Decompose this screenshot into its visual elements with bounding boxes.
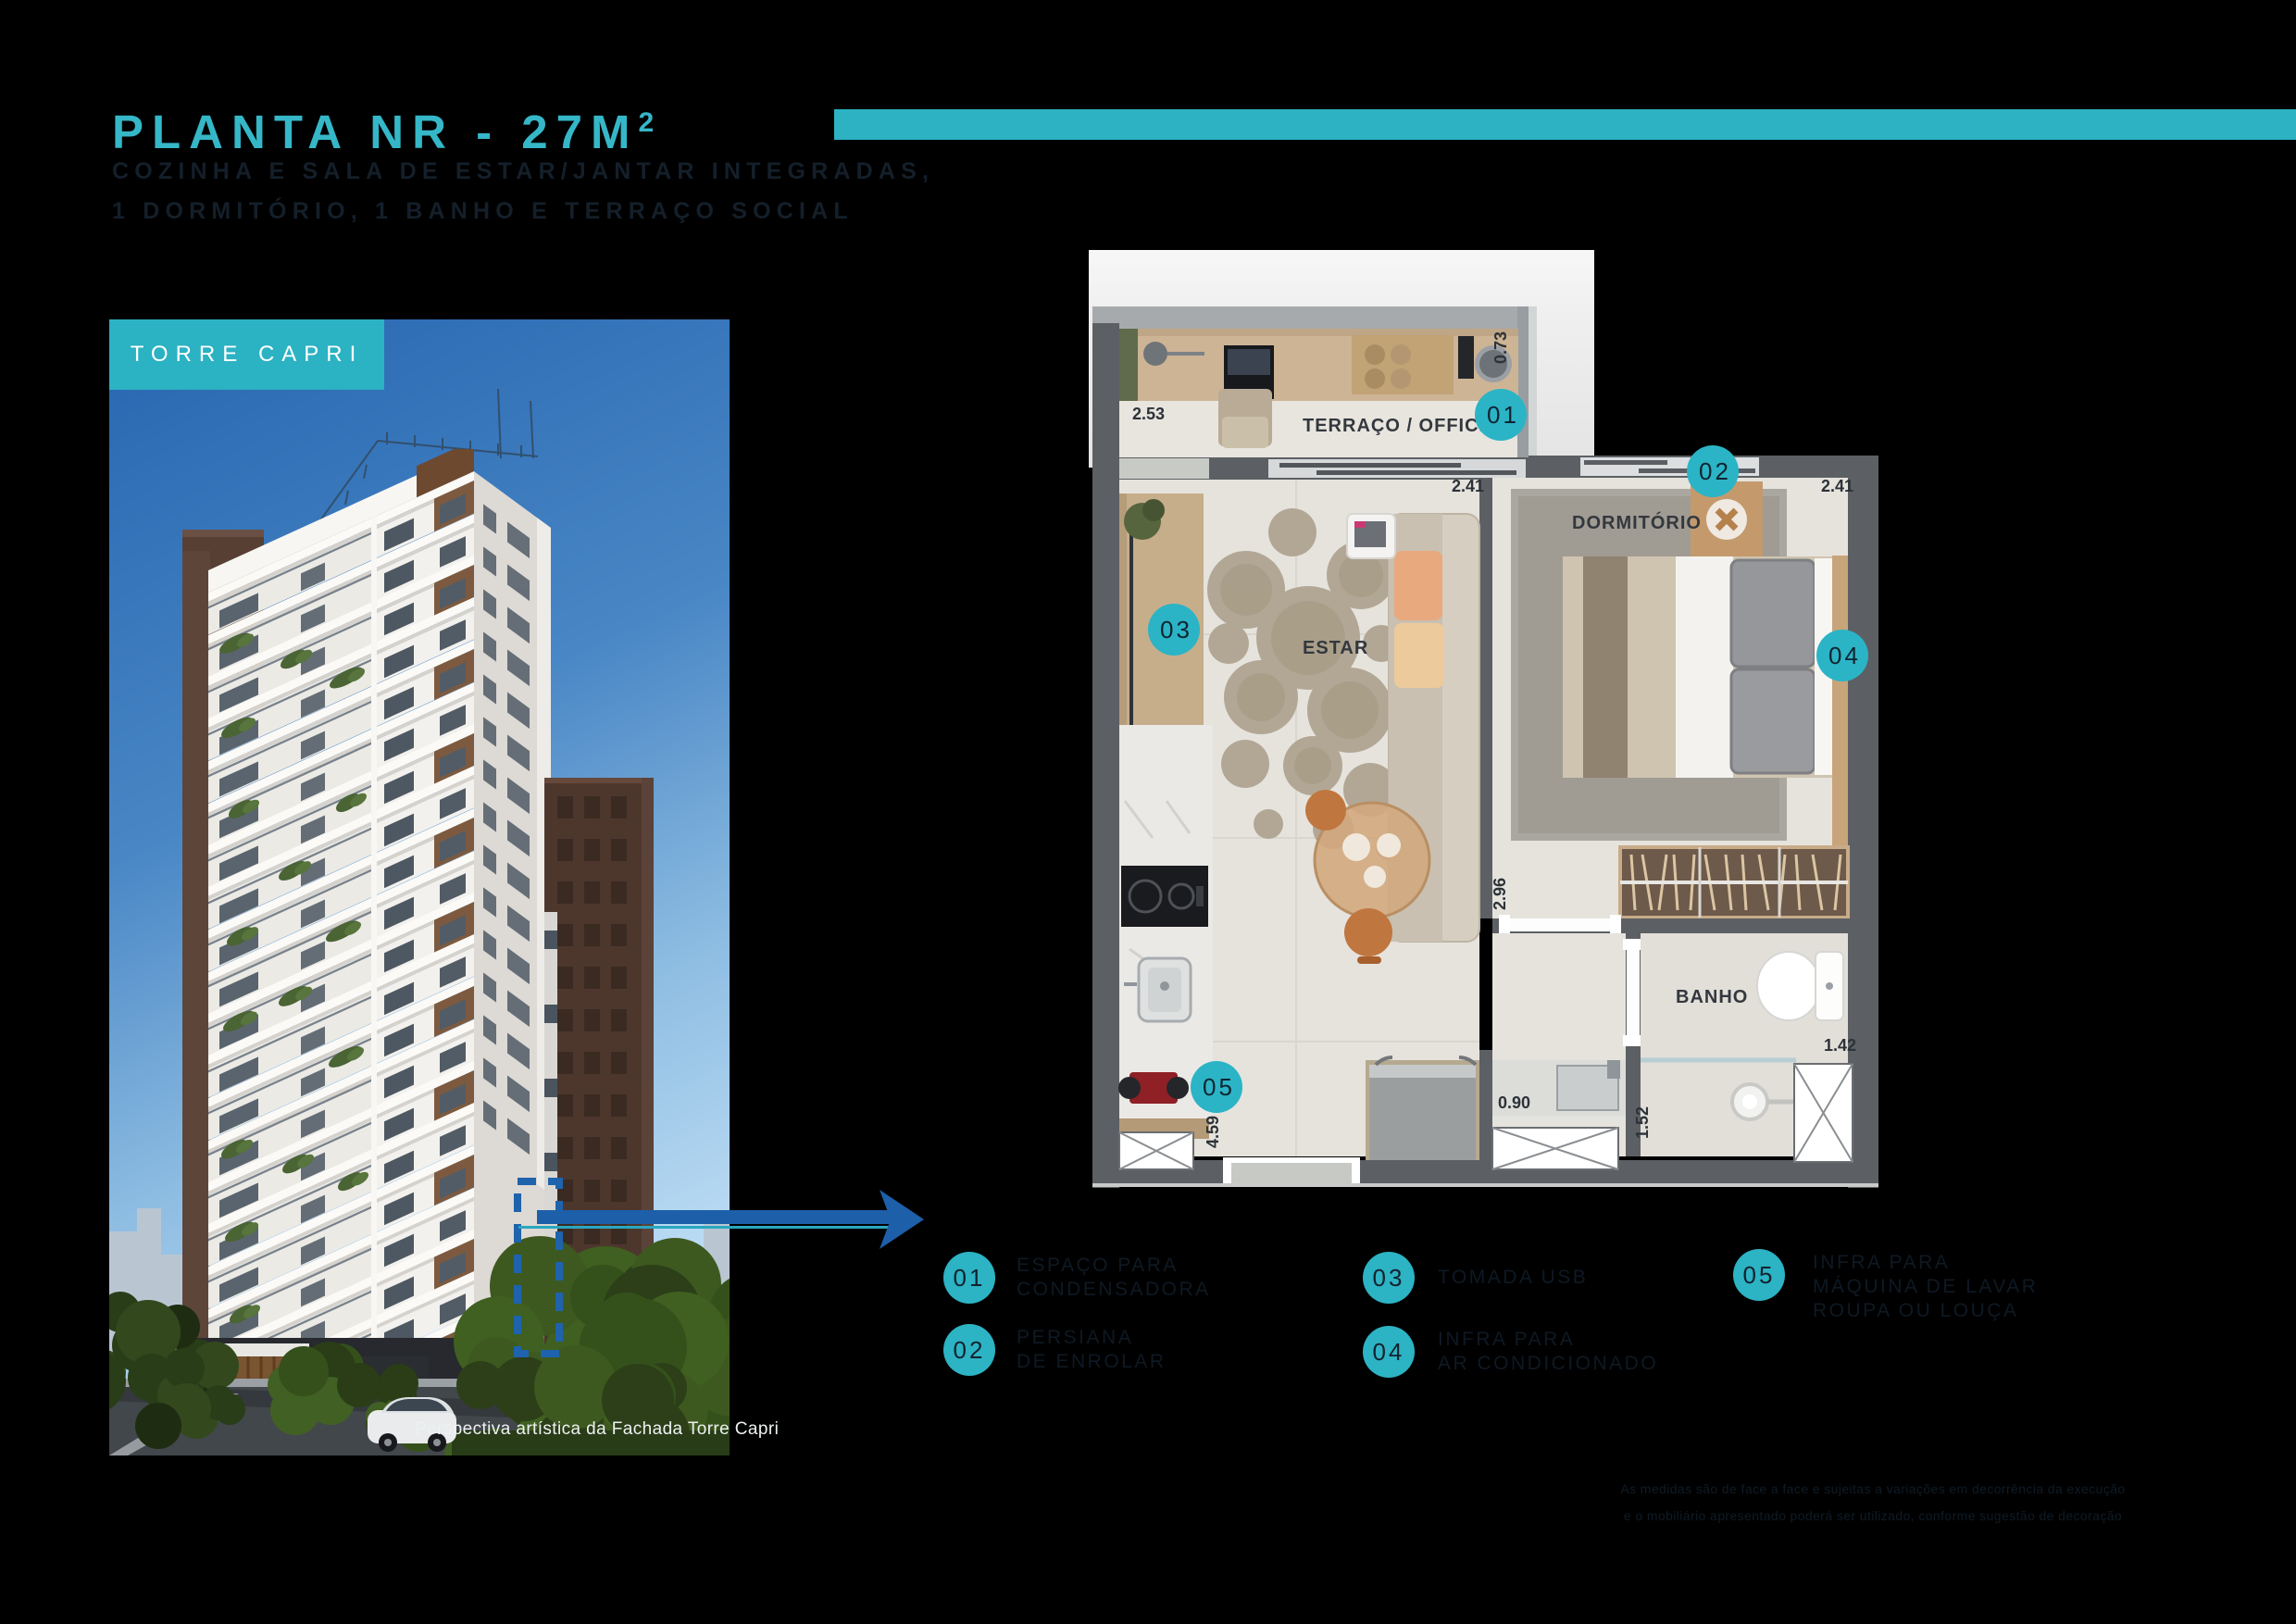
svg-text:0.73: 0.73 bbox=[1491, 331, 1510, 364]
svg-text:04: 04 bbox=[1828, 642, 1861, 669]
svg-text:1.52: 1.52 bbox=[1633, 1106, 1652, 1139]
svg-text:05: 05 bbox=[1203, 1073, 1235, 1101]
svg-text:03: 03 bbox=[1160, 616, 1192, 643]
svg-text:0.90: 0.90 bbox=[1498, 1093, 1530, 1112]
svg-text:TERRAÇO / OFFICE: TERRAÇO / OFFICE bbox=[1303, 416, 1492, 436]
svg-text:2.41: 2.41 bbox=[1821, 477, 1853, 495]
svg-text:1.42: 1.42 bbox=[1824, 1036, 1856, 1055]
svg-text:ESTAR: ESTAR bbox=[1303, 638, 1368, 658]
svg-text:2.96: 2.96 bbox=[1491, 878, 1509, 910]
svg-text:02: 02 bbox=[1699, 457, 1731, 485]
svg-text:2.41: 2.41 bbox=[1452, 477, 1484, 495]
svg-text:01: 01 bbox=[1487, 401, 1519, 429]
svg-text:4.59: 4.59 bbox=[1204, 1116, 1222, 1148]
svg-text:DORMITÓRIO: DORMITÓRIO bbox=[1572, 511, 1702, 533]
svg-text:BANHO: BANHO bbox=[1676, 987, 1748, 1007]
svg-text:2.53: 2.53 bbox=[1132, 405, 1165, 423]
